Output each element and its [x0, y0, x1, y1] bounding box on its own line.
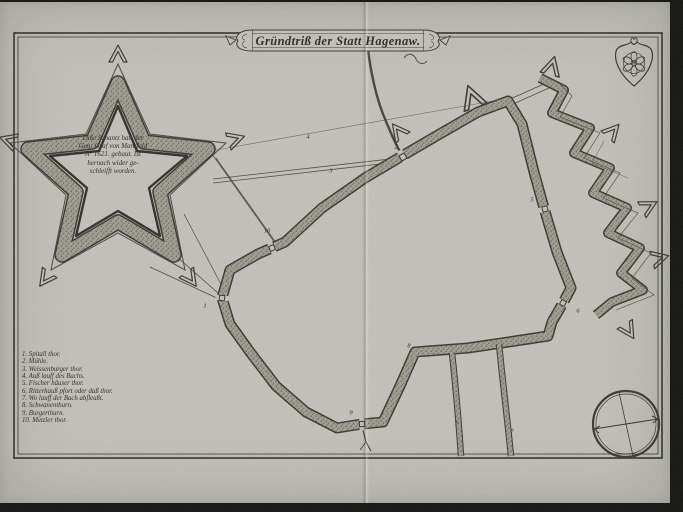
scanned-map-photo: Gründtriß der Statt Hagenaw. Diße Schant…	[0, 0, 683, 512]
legend-item: 10. Metzler thor.	[22, 417, 119, 424]
legend-item: 7. Wo lauff der Bach abfleußt.	[22, 395, 119, 402]
fort-note-line: hernach wider ge-	[58, 159, 168, 167]
fort-note-line: A° 1621. gebaut. Ist	[58, 150, 168, 158]
fort-note-line: schleifft worden.	[58, 167, 168, 175]
legend: 1. Spitall thor.2. Mühle.3. Weissenburge…	[22, 351, 119, 424]
fort-note-line: Gen: Graf von Mansfeld	[58, 142, 168, 150]
page-title: Gründtriß der Statt Hagenaw.	[252, 32, 424, 50]
legend-item: 6. Ritterhauß pfort oder daß thor.	[22, 388, 119, 395]
legend-item: 8. Schwanenthurn.	[22, 402, 119, 409]
fort-note: Diße Schantz hatt derGen: Graf von Mansf…	[58, 134, 168, 175]
legend-item: 3. Weissenburger thor.	[22, 366, 119, 373]
legend-item: 1. Spitall thor.	[22, 351, 119, 358]
fort-note-line: Diße Schantz hatt der	[58, 134, 168, 142]
paper-grain	[0, 0, 683, 512]
legend-item: 4. Auß lauff des Bachs.	[22, 373, 119, 380]
map-engraving	[0, 0, 683, 512]
legend-item: 9. Burgerthurn.	[22, 410, 119, 417]
legend-item: 5. Fischer häuser thor.	[22, 380, 119, 387]
legend-item: 2. Mühle.	[22, 358, 119, 365]
